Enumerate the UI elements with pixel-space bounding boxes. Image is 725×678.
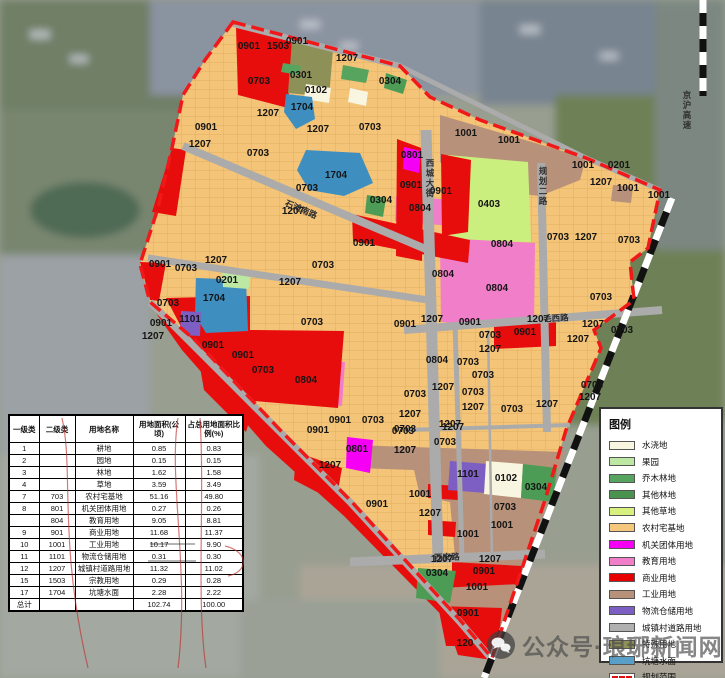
table-row: 101001工业用地10.179.90	[9, 539, 243, 551]
landuse-code-label: 0304	[370, 195, 393, 206]
table-cell: 草地	[75, 479, 133, 491]
landuse-code-label: 0901	[473, 566, 496, 577]
color-swatch	[609, 573, 635, 582]
legend-item: 商业用地	[609, 572, 715, 584]
landuse-code-label: 0703	[501, 404, 524, 415]
legend-label: 商业用地	[642, 572, 676, 584]
landuse-code-label: 0703	[494, 502, 517, 513]
table-cell: 教育用地	[75, 515, 133, 527]
legend-item: 水浇地	[609, 439, 715, 451]
landuse-code-label: 0804	[432, 269, 455, 280]
road-name-label: 毛西路	[543, 312, 569, 323]
table-cell: 3.49	[185, 479, 243, 491]
landuse-code-label: 0804	[426, 355, 449, 366]
landuse-code-label: 1207	[432, 382, 455, 393]
legend-label: 其他林地	[642, 489, 676, 501]
legend-item: 坑塘水面	[609, 655, 715, 667]
landuse-code-label: 0301	[290, 70, 313, 81]
table-cell	[39, 455, 75, 467]
landuse-code-label: 0304	[379, 76, 402, 87]
legend-label: 工业用地	[642, 588, 676, 600]
color-swatch	[609, 656, 635, 665]
table-cell: 804	[39, 515, 75, 527]
landuse-code-label: 1101	[179, 314, 201, 325]
table-cell: 11.32	[133, 563, 185, 575]
landuse-code-label: 0804	[486, 283, 509, 294]
table-cell: 10.17	[133, 539, 185, 551]
table-cell: 15	[9, 575, 39, 587]
color-swatch	[609, 557, 635, 566]
landuse-code-label: 1704	[291, 102, 314, 113]
table-cell: 9	[9, 527, 39, 539]
table-cell: 耕地	[75, 443, 133, 455]
landuse-code-label: 0703	[359, 122, 382, 133]
table-header-cell: 用地名称	[75, 415, 133, 443]
landuse-code-label: 0901	[457, 608, 480, 619]
landuse-code-label: 1207	[575, 232, 598, 243]
table-cell: 0.29	[133, 575, 185, 587]
table-cell: 4	[9, 479, 39, 491]
landuse-code-label: 1207	[142, 331, 165, 342]
table-row: 3林地1.621.58	[9, 467, 243, 479]
table-cell: 3	[9, 467, 39, 479]
landuse-code-label: 1207	[319, 460, 342, 471]
legend-item: 规划范围	[609, 671, 715, 678]
table-cell: 51.16	[133, 491, 185, 503]
color-swatch	[609, 507, 635, 516]
table-cell	[39, 467, 75, 479]
map-legend: 图例 水浇地果园乔木林地其他林地其他草地农村宅基地机关团体用地教育用地商业用地工…	[599, 407, 723, 663]
color-swatch	[609, 606, 635, 615]
table-header: 一级类二级类用地名称用地面积(公顷)占总用地面积比例(%)	[9, 415, 243, 443]
boundary-swatch	[609, 673, 635, 678]
landuse-code-label: 1001	[466, 582, 489, 593]
landuse-code-label: 1207	[567, 334, 590, 345]
legend-title: 图例	[609, 416, 715, 432]
table-cell: 102.74	[133, 599, 185, 612]
landuse-code-label: 0304	[525, 482, 548, 493]
landuse-code-label: 0304	[426, 568, 449, 579]
table-cell	[75, 599, 133, 612]
landuse-code-label: 0703	[301, 317, 324, 328]
table-row: 总计102.74100.00	[9, 599, 243, 612]
table-cell	[39, 443, 75, 455]
legend-item: 乔木林地	[609, 472, 715, 484]
landuse-code-label: 1001	[572, 160, 595, 171]
legend-label: 其他草地	[642, 505, 676, 517]
landuse-code-label: 1207	[307, 124, 330, 135]
table-cell: 1207	[39, 563, 75, 575]
table-cell: 11.37	[185, 527, 243, 539]
landuse-code-label: 1001	[491, 520, 514, 531]
landuse-code-label: 1207	[189, 139, 212, 150]
table-cell	[9, 515, 39, 527]
table-cell: 703	[39, 491, 75, 503]
table-cell: 801	[39, 503, 75, 515]
landuse-code-label: 1207	[462, 402, 485, 413]
landuse-code-label: 0901	[353, 238, 376, 249]
landuse-code-label: 0901	[195, 122, 218, 133]
landuse-code-label: 1207	[419, 508, 442, 519]
table-cell: 0.83	[185, 443, 243, 455]
table-cell: 2.22	[185, 587, 243, 599]
color-swatch	[609, 457, 635, 466]
legend-label: 教育用地	[642, 555, 676, 567]
table-cell	[39, 479, 75, 491]
table-cell: 100.00	[185, 599, 243, 612]
table-cell: 0.27	[133, 503, 185, 515]
table-cell: 总计	[9, 599, 39, 612]
table-cell: 8.81	[185, 515, 243, 527]
table-row: 1耕地0.850.83	[9, 443, 243, 455]
landuse-code-label: 0703	[157, 298, 180, 309]
color-swatch	[609, 474, 635, 483]
landuse-code-label: 0102	[305, 85, 328, 96]
landuse-code-label: 0703	[404, 389, 427, 400]
landuse-code-label: 0901	[232, 350, 255, 361]
landuse-code-label: 1207	[279, 277, 302, 288]
table-cell: 2	[9, 455, 39, 467]
table-cell: 9.90	[185, 539, 243, 551]
landuse-code-label: 0804	[295, 375, 318, 386]
landuse-code-label: 120	[457, 638, 474, 649]
landuse-code-label: 0201	[608, 160, 631, 171]
table-header-cell: 一级类	[9, 415, 39, 443]
landuse-code-label: 1207	[421, 314, 444, 325]
landuse-code-label: 1207	[536, 399, 559, 410]
table-cell: 0.15	[185, 455, 243, 467]
table-row: 8801机关团体用地0.270.26	[9, 503, 243, 515]
landuse-code-label: 0703	[611, 325, 634, 336]
landuse-code-label: 0201	[216, 275, 239, 286]
landuse-code-label: 0703	[392, 426, 415, 437]
legend-label: 坑塘水面	[642, 655, 676, 667]
landuse-code-label: 1704	[203, 293, 226, 304]
table-cell: 林地	[75, 467, 133, 479]
color-swatch	[609, 490, 635, 499]
legend-item: 农村宅基地	[609, 522, 715, 534]
landuse-code-label: 0703	[296, 183, 319, 194]
table-cell: 1	[9, 443, 39, 455]
legend-item: 城镇村道路用地	[609, 622, 715, 634]
landuse-code-label: 1001	[409, 489, 432, 500]
landuse-code-label: 0804	[491, 239, 514, 250]
landuse-code-label: 0901	[459, 317, 482, 328]
landuse-code-label: 1207	[590, 177, 613, 188]
table-header-cell: 用地面积(公顷)	[133, 415, 185, 443]
table-cell: 1704	[39, 587, 75, 599]
table-cell: 宗教用地	[75, 575, 133, 587]
table-cell: 1.62	[133, 467, 185, 479]
landuse-code-label: 1001	[455, 128, 478, 139]
landuse-code-label: 0901	[394, 319, 417, 330]
table-cell: 49.80	[185, 491, 243, 503]
table-cell: 11.68	[133, 527, 185, 539]
landuse-statistics-table: 一级类二级类用地名称用地面积(公顷)占总用地面积比例(%) 1耕地0.850.8…	[8, 414, 244, 612]
landuse-code-label: 1001	[498, 135, 521, 146]
landuse-code-label: 0703	[581, 380, 604, 391]
table-cell: 坑塘水面	[75, 587, 133, 599]
table-cell: 农村宅基地	[75, 491, 133, 503]
landuse-code-label: 0703	[362, 415, 385, 426]
legend-label: 水浇地	[642, 439, 668, 451]
table-row: 9901商业用地11.6811.37	[9, 527, 243, 539]
legend-item: 教育用地	[609, 555, 715, 567]
table-cell: 商业用地	[75, 527, 133, 539]
landuse-code-label: 0703	[247, 148, 270, 159]
color-swatch	[609, 590, 635, 599]
table-cell: 物流仓储用地	[75, 551, 133, 563]
landuse-code-label: 0703	[248, 76, 271, 87]
legend-item: 特殊用地	[609, 638, 715, 650]
legend-item: 机关团体用地	[609, 539, 715, 551]
legend-item: 工业用地	[609, 588, 715, 600]
landuse-code-label: 0804	[409, 203, 432, 214]
table-header-cell: 二级类	[39, 415, 75, 443]
landuse-code-label: 0703	[252, 365, 275, 376]
legend-label: 果园	[642, 456, 659, 468]
landuse-code-label: 0801	[346, 444, 369, 455]
landuse-code-label: 1207	[257, 108, 280, 119]
landuse-code-label: 1207	[442, 422, 465, 433]
landuse-code-label: 0703	[618, 235, 641, 246]
planning-map-screenshot: 0901150309011207070303010102170412071207…	[0, 0, 725, 678]
legend-item: 果园	[609, 456, 715, 468]
table-cell: 2.28	[133, 587, 185, 599]
landuse-code-label: 0703	[590, 292, 613, 303]
legend-label: 机关团体用地	[642, 539, 693, 551]
landuse-code-label: 0703	[547, 232, 570, 243]
landuse-code-label: 0901	[286, 36, 309, 47]
landuse-code-label: 0901	[400, 180, 423, 191]
table-row: 4草地3.593.49	[9, 479, 243, 491]
table-cell: 11.02	[185, 563, 243, 575]
table-cell: 1.58	[185, 467, 243, 479]
landuse-code-label: 0102	[495, 473, 518, 484]
landuse-code-label: 0901	[514, 327, 537, 338]
landuse-code-label: 0901	[150, 318, 173, 329]
landuse-code-label: 0901	[149, 259, 172, 270]
landuse-code-label: 0703	[434, 437, 457, 448]
table-cell: 园地	[75, 455, 133, 467]
landuse-code-label: 1207	[336, 53, 359, 64]
table-row: 7703农村宅基地51.1649.80	[9, 491, 243, 503]
table-cell: 机关团体用地	[75, 503, 133, 515]
table-row: 151503宗教用地0.290.28	[9, 575, 243, 587]
road-name-label: 西安路	[434, 552, 460, 563]
road-name-label: 西城大街	[425, 158, 435, 198]
legend-item: 其他草地	[609, 505, 715, 517]
table-row: 111101物流仓储用地0.310.30	[9, 551, 243, 563]
landuse-code-label: 0703	[312, 260, 335, 271]
table-row: 804教育用地9.058.81	[9, 515, 243, 527]
table-cell: 17	[9, 587, 39, 599]
table-cell: 10	[9, 539, 39, 551]
legend-label: 城镇村道路用地	[642, 622, 702, 634]
landuse-code-label: 0403	[478, 199, 501, 210]
color-swatch	[609, 623, 635, 632]
table-cell: 1001	[39, 539, 75, 551]
table-row: 2园地0.150.15	[9, 455, 243, 467]
table-cell	[39, 599, 75, 612]
landuse-code-label: 0901	[238, 41, 261, 52]
landuse-code-label: 1207	[579, 392, 602, 403]
landuse-region	[346, 437, 373, 473]
table-cell: 0.28	[185, 575, 243, 587]
landuse-code-label: 0901	[366, 499, 389, 510]
table-cell: 工业用地	[75, 539, 133, 551]
table-cell: 3.59	[133, 479, 185, 491]
color-swatch	[609, 640, 635, 649]
landuse-code-label: 0703	[479, 330, 502, 341]
road-name-label: 规划二路	[539, 166, 548, 206]
table-cell: 0.30	[185, 551, 243, 563]
table-row: 121207城镇村道路用地11.3211.02	[9, 563, 243, 575]
legend-item: 物流仓储用地	[609, 605, 715, 617]
color-swatch	[609, 523, 635, 532]
table-row: 171704坑塘水面2.282.22	[9, 587, 243, 599]
color-swatch	[609, 540, 635, 549]
landuse-code-label: 1207	[205, 255, 228, 266]
table-cell: 12	[9, 563, 39, 575]
landuse-code-label: 1207	[479, 554, 502, 565]
legend-item: 其他林地	[609, 489, 715, 501]
table-cell: 8	[9, 503, 39, 515]
landuse-code-label: 1207	[399, 409, 422, 420]
legend-label: 规划范围	[642, 671, 676, 678]
table-cell: 1101	[39, 551, 75, 563]
landuse-code-label: 1101	[457, 469, 479, 480]
landuse-code-label: 0703	[472, 370, 495, 381]
landuse-code-label: 0901	[307, 425, 330, 436]
legend-label: 物流仓储用地	[642, 605, 693, 617]
landuse-code-label: 1207	[479, 344, 502, 355]
table-header-cell: 占总用地面积比例(%)	[185, 415, 243, 443]
road-name-label: 京沪高速	[683, 90, 692, 130]
landuse-code-label: 1001	[617, 183, 640, 194]
table-cell: 9.05	[133, 515, 185, 527]
table-cell: 0.31	[133, 551, 185, 563]
landuse-code-label: 1207	[582, 319, 605, 330]
table-cell: 0.15	[133, 455, 185, 467]
legend-label: 农村宅基地	[642, 522, 685, 534]
legend-label: 乔木林地	[642, 472, 676, 484]
table-cell: 901	[39, 527, 75, 539]
landuse-code-label: 0703	[462, 387, 485, 398]
landuse-code-label: 1207	[394, 445, 417, 456]
legend-label: 特殊用地	[642, 638, 676, 650]
table-cell: 1503	[39, 575, 75, 587]
landuse-code-label: 1001	[457, 529, 480, 540]
table-cell: 城镇村道路用地	[75, 563, 133, 575]
table-cell: 0.26	[185, 503, 243, 515]
landuse-code-label: 1704	[325, 170, 348, 181]
table-cell: 0.85	[133, 443, 185, 455]
landuse-code-label: 0801	[401, 150, 424, 161]
landuse-code-label: 1001	[648, 190, 671, 201]
table-cell: 7	[9, 491, 39, 503]
color-swatch	[609, 441, 635, 450]
landuse-code-label: 0901	[202, 340, 225, 351]
landuse-code-label: 0901	[329, 415, 352, 426]
landuse-code-label: 0703	[457, 357, 480, 368]
table-cell: 11	[9, 551, 39, 563]
landuse-code-label: 0703	[175, 263, 198, 274]
